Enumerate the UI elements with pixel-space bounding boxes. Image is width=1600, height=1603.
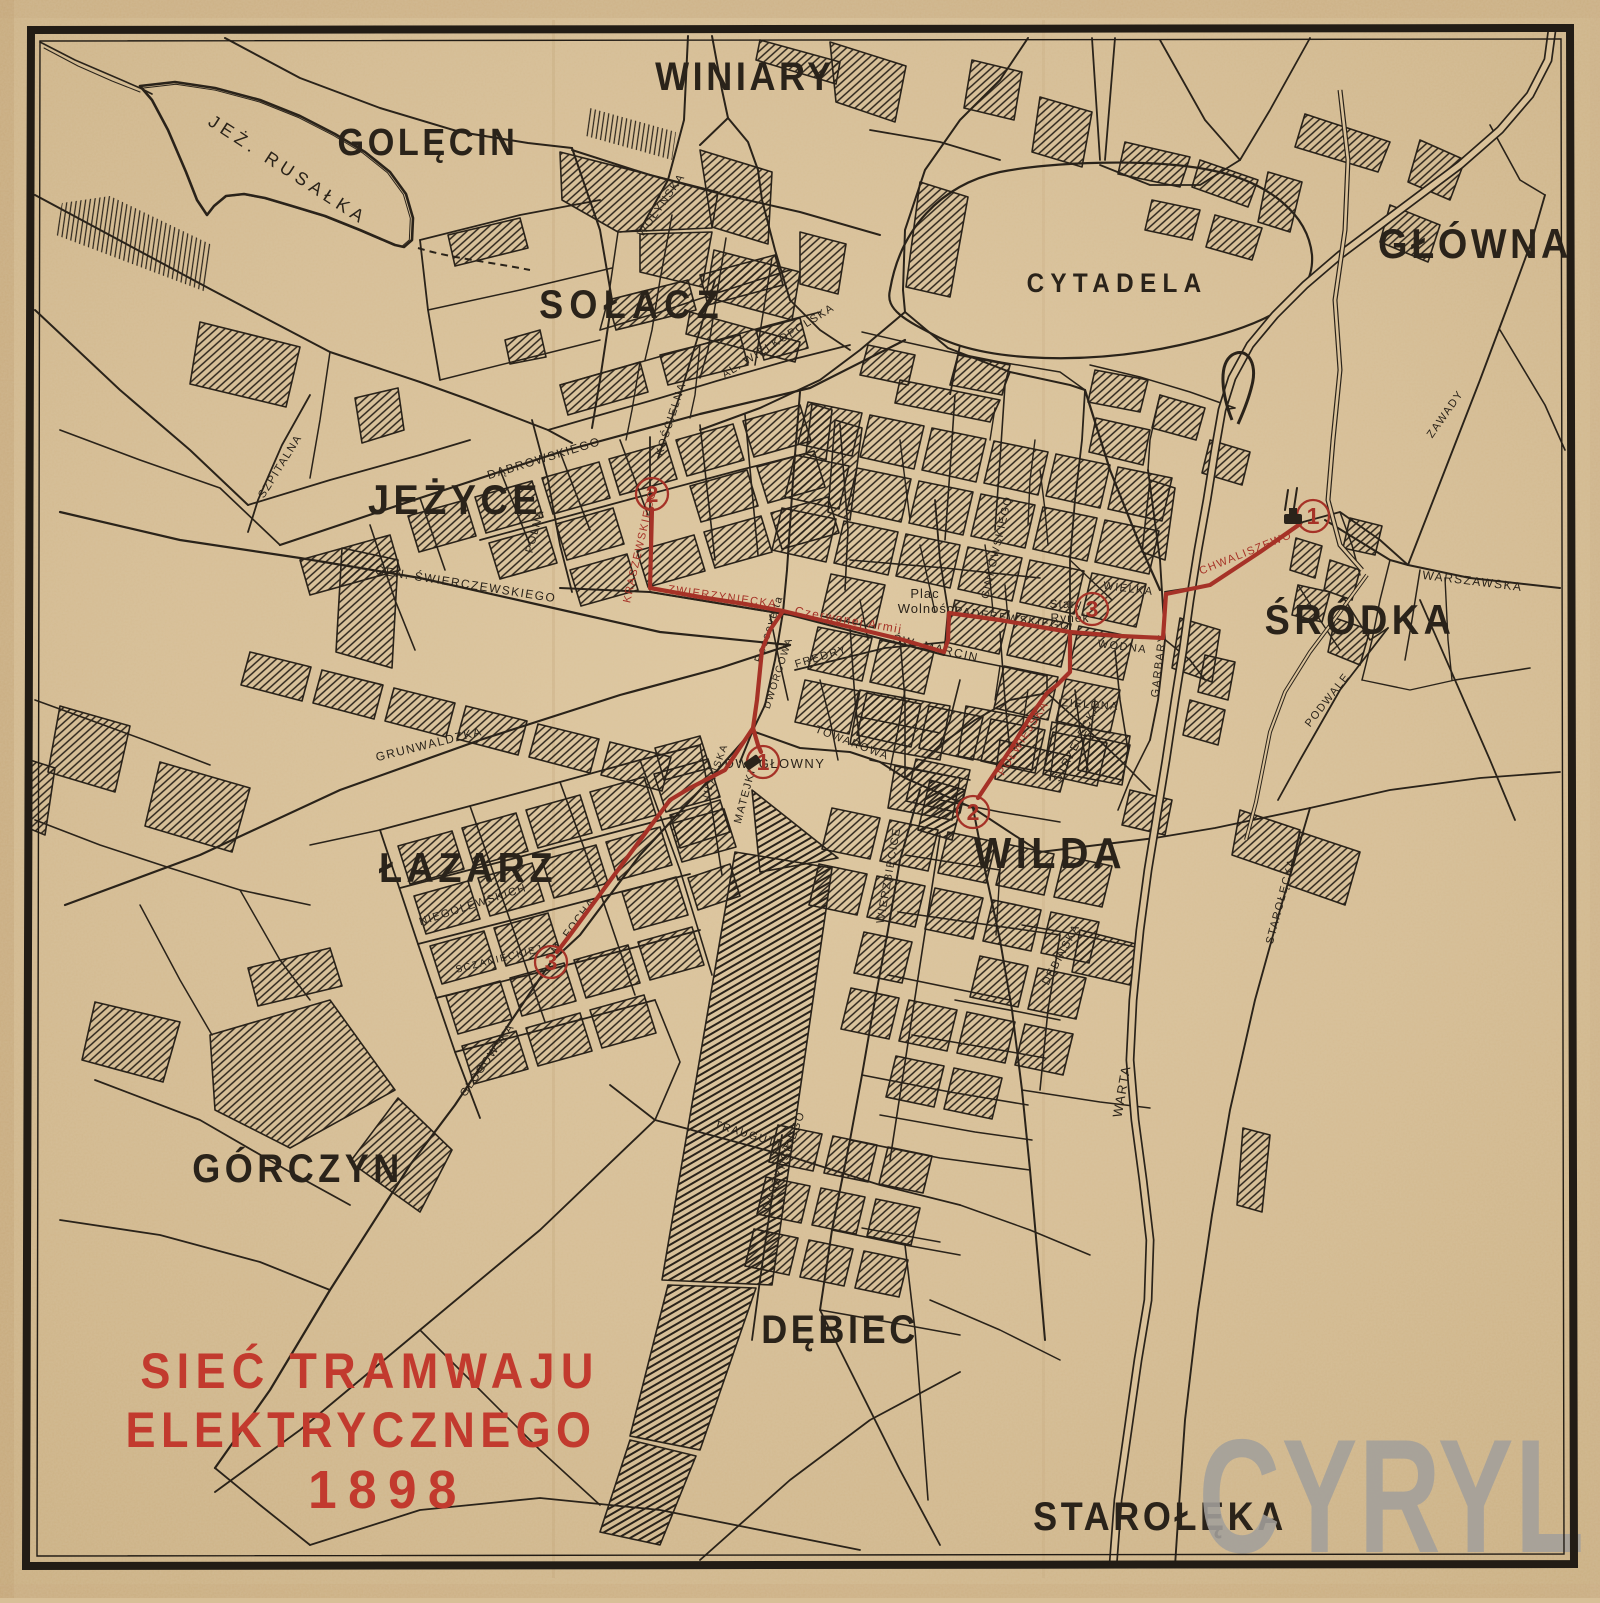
- svg-text:SOŁACZ: SOŁACZ: [539, 283, 725, 327]
- svg-text:1898: 1898: [308, 1460, 468, 1520]
- svg-text:SIEĆ TRAMWAJU: SIEĆ TRAMWAJU: [140, 1342, 599, 1400]
- svg-text:GÓRCZYN: GÓRCZYN: [192, 1145, 403, 1191]
- svg-text:GOLĘCIN: GOLĘCIN: [338, 120, 519, 163]
- svg-text:WILDA: WILDA: [974, 828, 1126, 877]
- svg-text:ŁAZARZ: ŁAZARZ: [379, 845, 557, 891]
- svg-text:WINIARY: WINIARY: [655, 55, 835, 99]
- svg-text:DW. GŁOWNY: DW. GŁOWNY: [725, 756, 826, 771]
- svg-text:JEŻYCE: JEŻYCE: [368, 477, 542, 523]
- svg-text:Plac: Plac: [910, 586, 939, 601]
- svg-text:ELEKTRYCZNEGO: ELEKTRYCZNEGO: [126, 1403, 597, 1459]
- svg-text:GŁÓWNA: GŁÓWNA: [1378, 219, 1572, 267]
- svg-text:1: 1: [1307, 503, 1320, 529]
- svg-text:3: 3: [1086, 596, 1099, 622]
- svg-text:DĘBIEC: DĘBIEC: [761, 1308, 919, 1352]
- svg-text:CYRYL: CYRYL: [1198, 1405, 1585, 1587]
- svg-text:CYTADELA: CYTADELA: [1027, 269, 1208, 298]
- svg-text:2: 2: [967, 799, 980, 825]
- svg-text:3: 3: [545, 949, 558, 975]
- svg-text:ŚRÓDKA: ŚRÓDKA: [1265, 595, 1456, 643]
